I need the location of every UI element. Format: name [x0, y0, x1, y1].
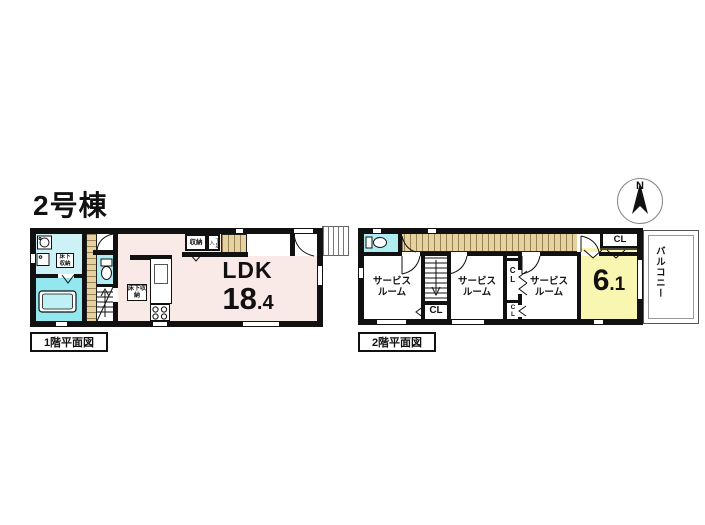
window [152, 321, 168, 327]
ldk-area-value: 18.4 [198, 281, 298, 317]
service-room-1-label: サービスルーム [372, 277, 412, 299]
shoe-storage-label: 下足入 [208, 236, 220, 249]
shoe-storage: 下足入 [207, 234, 220, 251]
closet-door-opening [518, 270, 522, 294]
room-6-1-area-value: 6.1 [583, 264, 635, 299]
ldk-area-dec: .4 [257, 292, 274, 314]
stairs-opening [113, 288, 118, 302]
closet-door-opening [518, 305, 522, 317]
window [376, 319, 407, 325]
service-room-2-label: サービスルーム [457, 277, 497, 299]
window [451, 319, 485, 325]
wall [503, 252, 507, 319]
door-opening [58, 274, 74, 278]
window [242, 321, 280, 327]
wall [507, 258, 522, 261]
underfloor-storage-ldk: 床下収納 [127, 284, 147, 301]
balcony-label: バルコニー [653, 246, 664, 299]
closet-mid-label: CL [508, 266, 517, 284]
window [30, 253, 36, 264]
underfloor-storage-label: 床下収納 [128, 286, 146, 300]
wall [93, 250, 117, 255]
wall [82, 234, 86, 321]
floor1-caption: 1階平面図 [30, 332, 108, 352]
floor2-caption: 2階平面図 [358, 332, 436, 352]
window [235, 228, 244, 234]
storage-label: 収納 [190, 239, 203, 246]
window [593, 319, 604, 325]
window [427, 228, 437, 234]
window [358, 267, 364, 279]
window [637, 259, 643, 300]
door-opening [522, 252, 540, 256]
storage-closet: 収納 [185, 234, 207, 251]
door-opening [449, 252, 467, 256]
wall [290, 234, 295, 256]
service-room-3-label: サービスルーム [529, 277, 569, 299]
room-area-dec: .1 [609, 274, 625, 295]
stove [150, 304, 170, 321]
underfloor-storage-washroom: 床下収納 [56, 253, 74, 268]
wall [113, 234, 118, 321]
wall [507, 300, 522, 303]
closet-top: CL [600, 234, 637, 248]
floorplan-page: 2号棟 N 収納 下足入 床下収納 床下収納 LDK [0, 0, 705, 525]
ldk-area-int: 18 [222, 281, 256, 316]
floor1-caption-text: 1階平面図 [44, 334, 94, 350]
entrance-door-opening [293, 228, 314, 234]
ldk-label: LDK [205, 257, 290, 283]
closet-small-label: CL [509, 304, 516, 318]
entrance-porch-steps [322, 226, 349, 256]
window [372, 228, 382, 234]
kitchen-sink [154, 264, 168, 284]
window [317, 265, 323, 286]
closet-top-label: CL [614, 235, 627, 246]
room-area-int: 6 [593, 264, 610, 297]
wall [97, 284, 113, 287]
closet-stairs-label: CL [424, 305, 448, 317]
page-title: 2号棟 [33, 190, 108, 222]
wall [577, 252, 581, 319]
door-opening [402, 252, 420, 256]
floor2-caption-text: 2階平面図 [372, 334, 422, 350]
window [55, 321, 68, 327]
wall [398, 234, 402, 252]
underfloor-storage-label: 床下収納 [57, 254, 73, 267]
compass-north-label: N [634, 180, 646, 193]
